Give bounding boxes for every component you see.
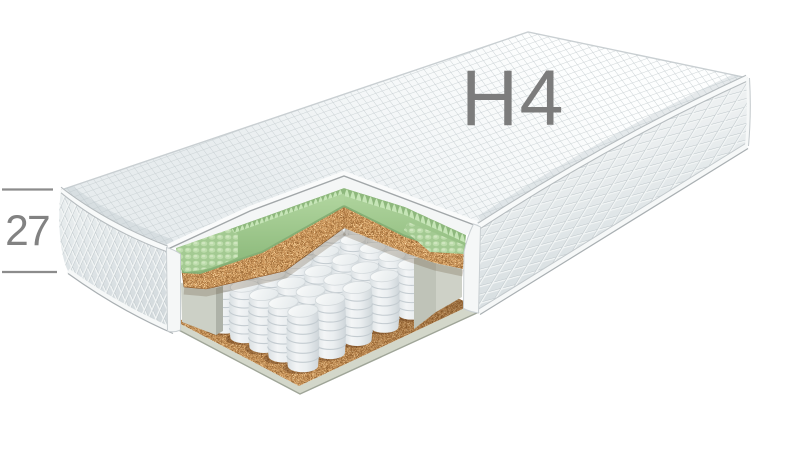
svg-text:H4: H4 — [461, 53, 565, 142]
svg-text:27: 27 — [5, 208, 49, 255]
